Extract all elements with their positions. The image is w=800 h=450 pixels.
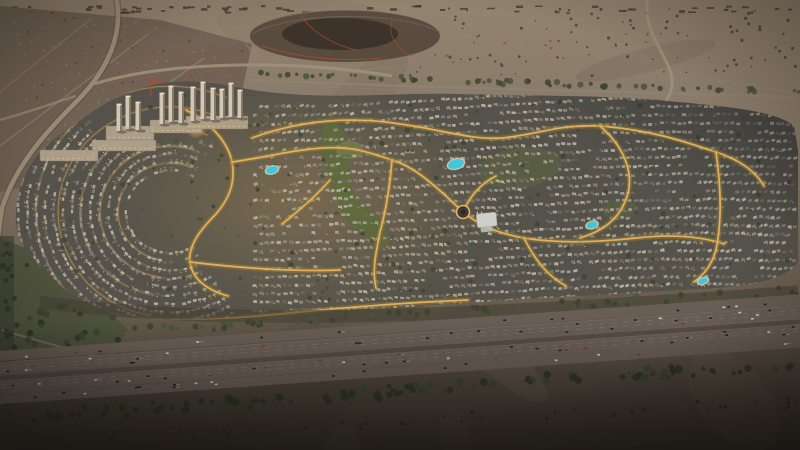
aerial-dusk-masterplan-render bbox=[0, 0, 800, 450]
render-canvas bbox=[0, 0, 800, 450]
